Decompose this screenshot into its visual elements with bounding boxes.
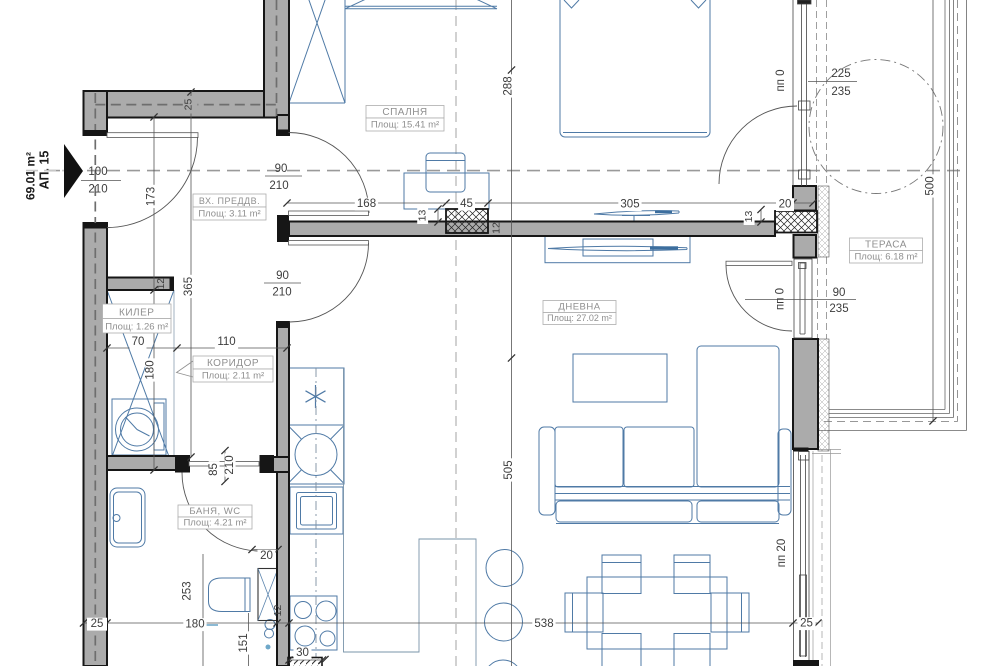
svg-text:13: 13: [743, 211, 755, 223]
svg-text:Площ: 6.18 m²: Площ: 6.18 m²: [854, 252, 917, 263]
svg-text:Площ: 27.02 m²: Площ: 27.02 m²: [547, 313, 612, 323]
svg-text:СПАЛНЯ: СПАЛНЯ: [382, 107, 427, 118]
svg-text:500: 500: [925, 176, 937, 195]
svg-text:288: 288: [503, 76, 515, 95]
svg-text:КОРИДОР: КОРИДОР: [207, 358, 259, 369]
svg-text:69.01 m²: 69.01 m²: [24, 152, 38, 200]
svg-text:30: 30: [296, 647, 309, 659]
svg-text:180: 180: [185, 619, 204, 631]
svg-text:45: 45: [460, 198, 473, 210]
svg-text:70: 70: [132, 336, 145, 348]
svg-text:20: 20: [779, 199, 792, 211]
svg-text:168: 168: [357, 198, 376, 210]
svg-text:505: 505: [503, 460, 515, 479]
svg-text:Площ: 2.11 m²: Площ: 2.11 m²: [202, 371, 264, 382]
svg-text:КИЛЕР: КИЛЕР: [119, 308, 154, 319]
svg-text:210: 210: [272, 287, 291, 299]
svg-text:БАНЯ, WC: БАНЯ, WC: [189, 506, 240, 517]
svg-text:25: 25: [91, 618, 104, 630]
svg-text:25: 25: [183, 99, 195, 111]
svg-text:235: 235: [831, 86, 850, 98]
svg-text:Площ: 3.11 m²: Площ: 3.11 m²: [198, 209, 260, 220]
svg-text:365: 365: [183, 277, 195, 296]
svg-text:210: 210: [269, 180, 288, 192]
svg-text:Площ: 1.26 m²: Площ: 1.26 m²: [105, 322, 168, 333]
svg-text:ВХ. ПРЕДДВ.: ВХ. ПРЕДДВ.: [199, 196, 260, 206]
svg-text:пп 0: пп 0: [775, 288, 787, 310]
svg-text:85: 85: [208, 463, 220, 476]
svg-text:13: 13: [417, 210, 429, 222]
svg-text:25: 25: [800, 618, 813, 630]
svg-text:Площ: 4.21 m²: Площ: 4.21 m²: [183, 518, 246, 529]
svg-text:210: 210: [88, 184, 107, 196]
svg-text:538: 538: [534, 618, 553, 630]
svg-text:90: 90: [833, 287, 846, 299]
svg-text:90: 90: [276, 270, 289, 282]
svg-text:305: 305: [620, 199, 639, 211]
svg-text:12: 12: [491, 222, 503, 234]
svg-text:20: 20: [260, 550, 273, 562]
svg-text:235: 235: [829, 303, 848, 315]
svg-text:151: 151: [238, 633, 250, 652]
svg-text:12: 12: [272, 605, 284, 617]
svg-text:110: 110: [217, 336, 235, 348]
svg-text:225: 225: [831, 68, 850, 80]
svg-text:173: 173: [146, 187, 158, 206]
svg-text:90: 90: [275, 163, 288, 175]
svg-text:12: 12: [156, 278, 167, 290]
svg-text:пп 20: пп 20: [776, 539, 788, 567]
svg-text:Площ: 15.41 m²: Площ: 15.41 m²: [371, 120, 439, 131]
svg-text:180: 180: [145, 360, 157, 379]
svg-text:пп 0: пп 0: [775, 69, 787, 91]
svg-text:100: 100: [88, 166, 107, 178]
svg-text:210: 210: [224, 455, 236, 474]
svg-text:253: 253: [182, 581, 194, 600]
svg-text:ДНЕВНА: ДНЕВНА: [558, 302, 600, 313]
svg-text:ТЕРАСА: ТЕРАСА: [865, 240, 907, 251]
